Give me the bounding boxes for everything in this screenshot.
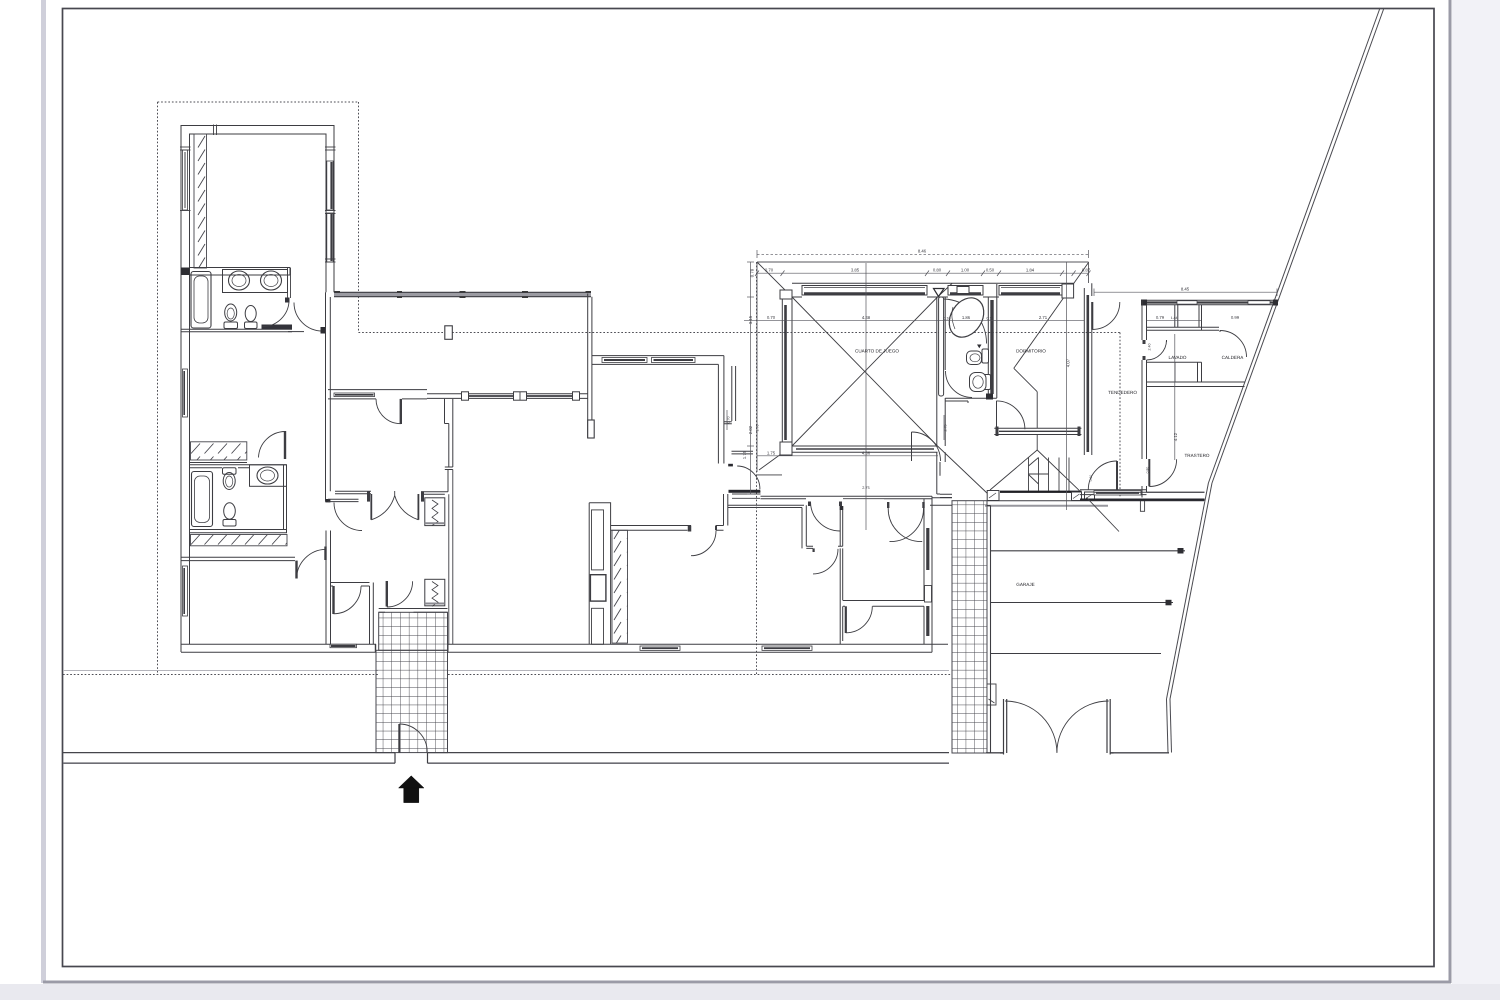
svg-text:4.36: 4.36 [862, 450, 871, 455]
svg-text:8.45: 8.45 [1181, 287, 1190, 292]
svg-text:GARAJE: GARAJE [1016, 582, 1034, 587]
svg-text:1.00: 1.00 [961, 267, 970, 272]
svg-text:0.50: 0.50 [986, 267, 995, 272]
svg-text:1.70: 1.70 [756, 425, 760, 432]
svg-text:8.46: 8.46 [918, 249, 927, 254]
svg-text:1.75: 1.75 [767, 450, 776, 455]
svg-text:3.15: 3.15 [748, 315, 753, 324]
svg-text:3.85: 3.85 [851, 267, 860, 272]
svg-text:0.70: 0.70 [765, 267, 774, 272]
svg-text:0.80: 0.80 [1146, 467, 1150, 474]
svg-text:4.07: 4.07 [1066, 358, 1071, 367]
svg-text:0.70: 0.70 [767, 315, 776, 320]
svg-text:0.10: 0.10 [987, 317, 994, 321]
svg-text:2.75: 2.75 [862, 486, 869, 490]
svg-text:0.60: 0.60 [1089, 475, 1093, 482]
svg-text:2.75: 2.75 [944, 425, 948, 432]
svg-text:CALDERA: CALDERA [1222, 355, 1245, 360]
svg-text:0.80: 0.80 [933, 267, 942, 272]
svg-text:LAVADO: LAVADO [1169, 355, 1187, 360]
svg-text:4.38: 4.38 [862, 315, 871, 320]
svg-text:2.71: 2.71 [1039, 315, 1048, 320]
svg-text:DORMITORIO: DORMITORIO [1016, 349, 1046, 354]
svg-text:1.75: 1.75 [742, 450, 747, 459]
svg-text:0.10: 0.10 [944, 317, 951, 321]
svg-text:4.12: 4.12 [1173, 432, 1178, 441]
svg-text:2.02: 2.02 [748, 425, 753, 434]
svg-text:TRASTERO: TRASTERO [1184, 453, 1209, 458]
svg-text:TENDEDERO: TENDEDERO [1108, 390, 1137, 395]
svg-text:0.87: 0.87 [1082, 267, 1091, 272]
svg-text:2.40: 2.40 [1148, 344, 1152, 351]
svg-text:0.78: 0.78 [750, 268, 755, 277]
svg-text:CUARTO DE JUEGO: CUARTO DE JUEGO [855, 349, 899, 354]
svg-text:1.44: 1.44 [1171, 316, 1178, 320]
svg-text:0.79: 0.79 [1156, 315, 1165, 320]
svg-text:1.84: 1.84 [1026, 267, 1035, 272]
svg-text:0.99: 0.99 [1231, 315, 1240, 320]
svg-text:1.86: 1.86 [962, 315, 971, 320]
svg-text:0.70: 0.70 [727, 417, 731, 424]
